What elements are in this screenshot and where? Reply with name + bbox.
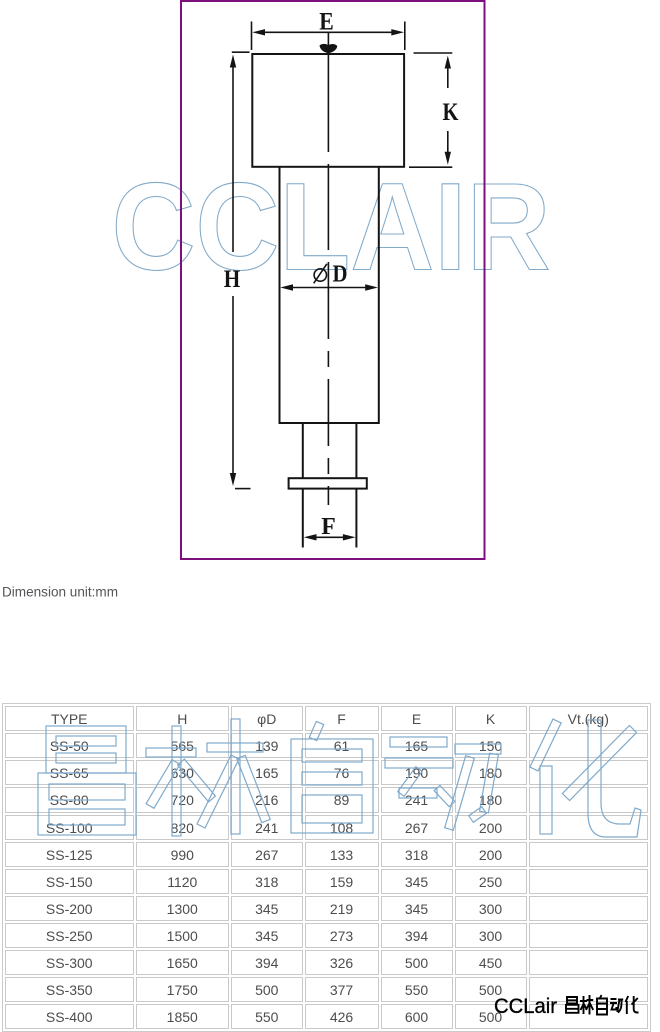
svg-text:K: K: [443, 99, 459, 126]
svg-text:Dimension unit:mm: Dimension unit:mm: [2, 584, 118, 600]
svg-text:CCLair: CCLair: [494, 994, 557, 1018]
svg-text:E: E: [319, 9, 334, 36]
svg-text:H: H: [224, 266, 241, 293]
svg-text:D: D: [333, 262, 348, 288]
svg-text:F: F: [321, 514, 336, 540]
